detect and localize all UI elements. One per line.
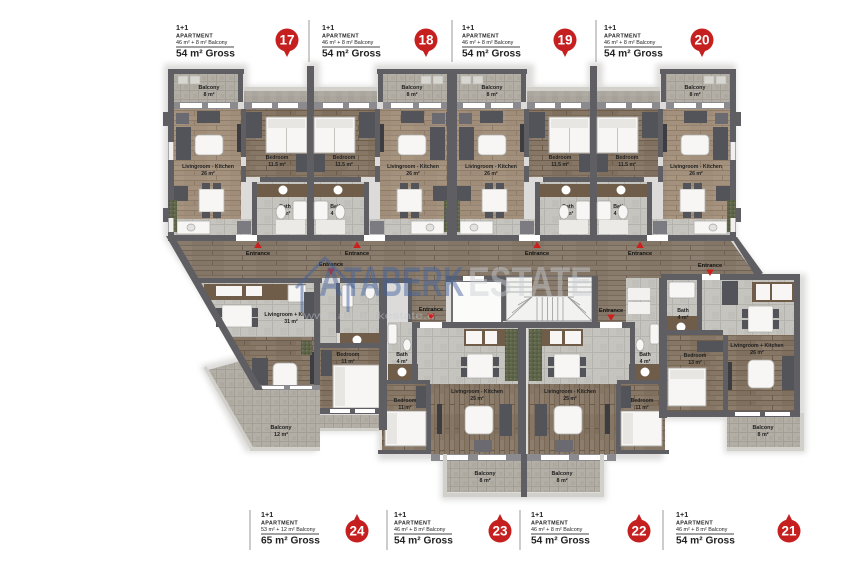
svg-text:Balcony: Balcony bbox=[402, 85, 423, 91]
svg-text:ESTATE: ESTATE bbox=[468, 258, 592, 305]
svg-text:Livingroom - Kitchen: Livingroom - Kitchen bbox=[670, 164, 722, 170]
svg-text:Livingroom - Kitchen: Livingroom - Kitchen bbox=[451, 389, 503, 395]
svg-text:www.ataberkestate.c: www.ataberkestate.c bbox=[303, 311, 434, 322]
svg-text:20: 20 bbox=[694, 33, 709, 48]
svg-text:54 m² Gross: 54 m² Gross bbox=[176, 49, 235, 60]
svg-text:Livingroom - Kitchen: Livingroom - Kitchen bbox=[387, 164, 439, 170]
svg-text:8 m²: 8 m² bbox=[757, 432, 768, 438]
svg-text:1+1: 1+1 bbox=[676, 510, 688, 519]
svg-text:17: 17 bbox=[279, 33, 294, 48]
svg-text:APARTMENT: APARTMENT bbox=[322, 34, 359, 40]
svg-text:22: 22 bbox=[631, 524, 646, 539]
svg-text:Livingroom - Kitchen: Livingroom - Kitchen bbox=[182, 164, 234, 170]
svg-text:8 m²: 8 m² bbox=[689, 92, 700, 98]
svg-text:11.5 m²: 11.5 m² bbox=[618, 162, 636, 168]
svg-text:APARTMENT: APARTMENT bbox=[176, 34, 213, 40]
svg-text:Entrance: Entrance bbox=[628, 251, 652, 257]
svg-text:Entrance: Entrance bbox=[345, 251, 369, 257]
svg-text:26 m²: 26 m² bbox=[406, 171, 420, 177]
svg-text:Livingroom - Kitchen: Livingroom - Kitchen bbox=[465, 164, 517, 170]
svg-text:1+1: 1+1 bbox=[531, 510, 543, 519]
svg-text:54 m² Gross: 54 m² Gross bbox=[394, 536, 453, 547]
svg-text:APARTMENT: APARTMENT bbox=[462, 34, 499, 40]
svg-text:Bath: Bath bbox=[639, 352, 651, 358]
svg-text:46 m² + 8 m² Balcony: 46 m² + 8 m² Balcony bbox=[394, 527, 446, 533]
svg-text:46 m² + 8 m² Balcony: 46 m² + 8 m² Balcony bbox=[176, 40, 228, 46]
svg-text:54 m² Gross: 54 m² Gross bbox=[604, 49, 663, 60]
svg-text:Balcony: Balcony bbox=[685, 85, 706, 91]
svg-text:26 m²: 26 m² bbox=[689, 171, 703, 177]
svg-text:Entrance: Entrance bbox=[246, 251, 270, 257]
svg-text:APARTMENT: APARTMENT bbox=[261, 521, 298, 527]
svg-text:54 m² Gross: 54 m² Gross bbox=[676, 536, 735, 547]
svg-text:Balcony: Balcony bbox=[271, 425, 292, 431]
svg-text:Entrance: Entrance bbox=[698, 263, 722, 269]
svg-text:11.5 m²: 11.5 m² bbox=[335, 162, 353, 168]
svg-text:13 m²: 13 m² bbox=[688, 360, 702, 366]
svg-text:APARTMENT: APARTMENT bbox=[676, 521, 713, 527]
svg-text:11.5 m²: 11.5 m² bbox=[268, 162, 286, 168]
svg-text:26 m²: 26 m² bbox=[484, 171, 498, 177]
svg-text:Entrance: Entrance bbox=[599, 308, 623, 314]
svg-text:APARTMENT: APARTMENT bbox=[394, 521, 431, 527]
svg-text:1+1: 1+1 bbox=[322, 23, 334, 32]
svg-text:A: A bbox=[319, 258, 343, 305]
svg-text:19: 19 bbox=[557, 33, 572, 48]
svg-text:65 m² Gross: 65 m² Gross bbox=[261, 536, 320, 547]
svg-text:26 m²: 26 m² bbox=[201, 171, 215, 177]
svg-text:Bedroom: Bedroom bbox=[616, 155, 639, 161]
svg-text:Bedroom: Bedroom bbox=[266, 155, 289, 161]
svg-text:Balcony: Balcony bbox=[753, 425, 774, 431]
svg-text:4 m²: 4 m² bbox=[678, 315, 689, 321]
svg-text:18: 18 bbox=[418, 33, 434, 48]
svg-text:46 m² + 8 m² Balcony: 46 m² + 8 m² Balcony bbox=[462, 40, 514, 46]
svg-text:46 m² + 8 m² Balcony: 46 m² + 8 m² Balcony bbox=[676, 527, 728, 533]
svg-text:Bath: Bath bbox=[396, 352, 408, 358]
svg-text:46 m² + 8 m² Balcony: 46 m² + 8 m² Balcony bbox=[604, 40, 656, 46]
svg-text:46 m² + 8 m² Balcony: 46 m² + 8 m² Balcony bbox=[322, 40, 374, 46]
svg-text:8 m²: 8 m² bbox=[486, 92, 497, 98]
svg-text:Bedroom: Bedroom bbox=[549, 155, 572, 161]
svg-text:54 m² Gross: 54 m² Gross bbox=[462, 49, 521, 60]
svg-text:Bedroom: Bedroom bbox=[684, 353, 707, 359]
svg-text:8 m²: 8 m² bbox=[203, 92, 214, 98]
svg-text:APARTMENT: APARTMENT bbox=[604, 34, 641, 40]
svg-text:Bedroom: Bedroom bbox=[333, 155, 356, 161]
svg-text:Bedroom: Bedroom bbox=[394, 398, 417, 404]
svg-text:Bedroom: Bedroom bbox=[631, 398, 654, 404]
svg-text:8 m²: 8 m² bbox=[556, 478, 567, 484]
svg-text:Bath: Bath bbox=[677, 308, 689, 314]
svg-text:1+1: 1+1 bbox=[176, 23, 188, 32]
svg-text:1+1: 1+1 bbox=[604, 23, 616, 32]
svg-text:26 m²: 26 m² bbox=[750, 350, 764, 356]
svg-text:Balcony: Balcony bbox=[552, 471, 573, 477]
svg-text:APARTMENT: APARTMENT bbox=[531, 521, 568, 527]
svg-text:Balcony: Balcony bbox=[475, 471, 496, 477]
svg-text:TABERK: TABERK bbox=[344, 258, 464, 305]
svg-text:8 m²: 8 m² bbox=[406, 92, 417, 98]
svg-text:Balcony: Balcony bbox=[199, 85, 220, 91]
svg-text:Balcony: Balcony bbox=[482, 85, 503, 91]
svg-text:11 m²: 11 m² bbox=[341, 359, 355, 365]
svg-text:12 m²: 12 m² bbox=[274, 432, 288, 438]
svg-text:Entrance: Entrance bbox=[525, 251, 549, 257]
svg-text:1+1: 1+1 bbox=[462, 23, 474, 32]
svg-text:4 m²: 4 m² bbox=[397, 359, 408, 365]
svg-text:53 m² + 12 m² Balcony: 53 m² + 12 m² Balcony bbox=[261, 527, 316, 533]
svg-text:11 m²: 11 m² bbox=[398, 405, 412, 411]
svg-text:1+1: 1+1 bbox=[261, 510, 273, 519]
svg-text:24: 24 bbox=[349, 524, 365, 539]
svg-text:23: 23 bbox=[492, 524, 508, 539]
svg-text:1+1: 1+1 bbox=[394, 510, 406, 519]
svg-text:21: 21 bbox=[781, 524, 797, 539]
svg-text:46 m² + 8 m² Balcony: 46 m² + 8 m² Balcony bbox=[531, 527, 583, 533]
svg-text:54 m² Gross: 54 m² Gross bbox=[322, 49, 381, 60]
svg-text:25 m²: 25 m² bbox=[470, 396, 484, 402]
svg-text:8 m²: 8 m² bbox=[479, 478, 490, 484]
svg-text:31 m²: 31 m² bbox=[284, 319, 298, 325]
svg-text:Bedroom: Bedroom bbox=[337, 352, 360, 358]
svg-text:54 m² Gross: 54 m² Gross bbox=[531, 536, 590, 547]
svg-text:11 m²: 11 m² bbox=[635, 405, 649, 411]
svg-text:11.5 m²: 11.5 m² bbox=[551, 162, 569, 168]
svg-text:Livingroom - Kitchen: Livingroom - Kitchen bbox=[544, 389, 596, 395]
svg-text:4 m²: 4 m² bbox=[640, 359, 651, 365]
svg-text:Livingroom + Kitchen: Livingroom + Kitchen bbox=[730, 343, 783, 349]
svg-text:25 m²: 25 m² bbox=[563, 396, 577, 402]
